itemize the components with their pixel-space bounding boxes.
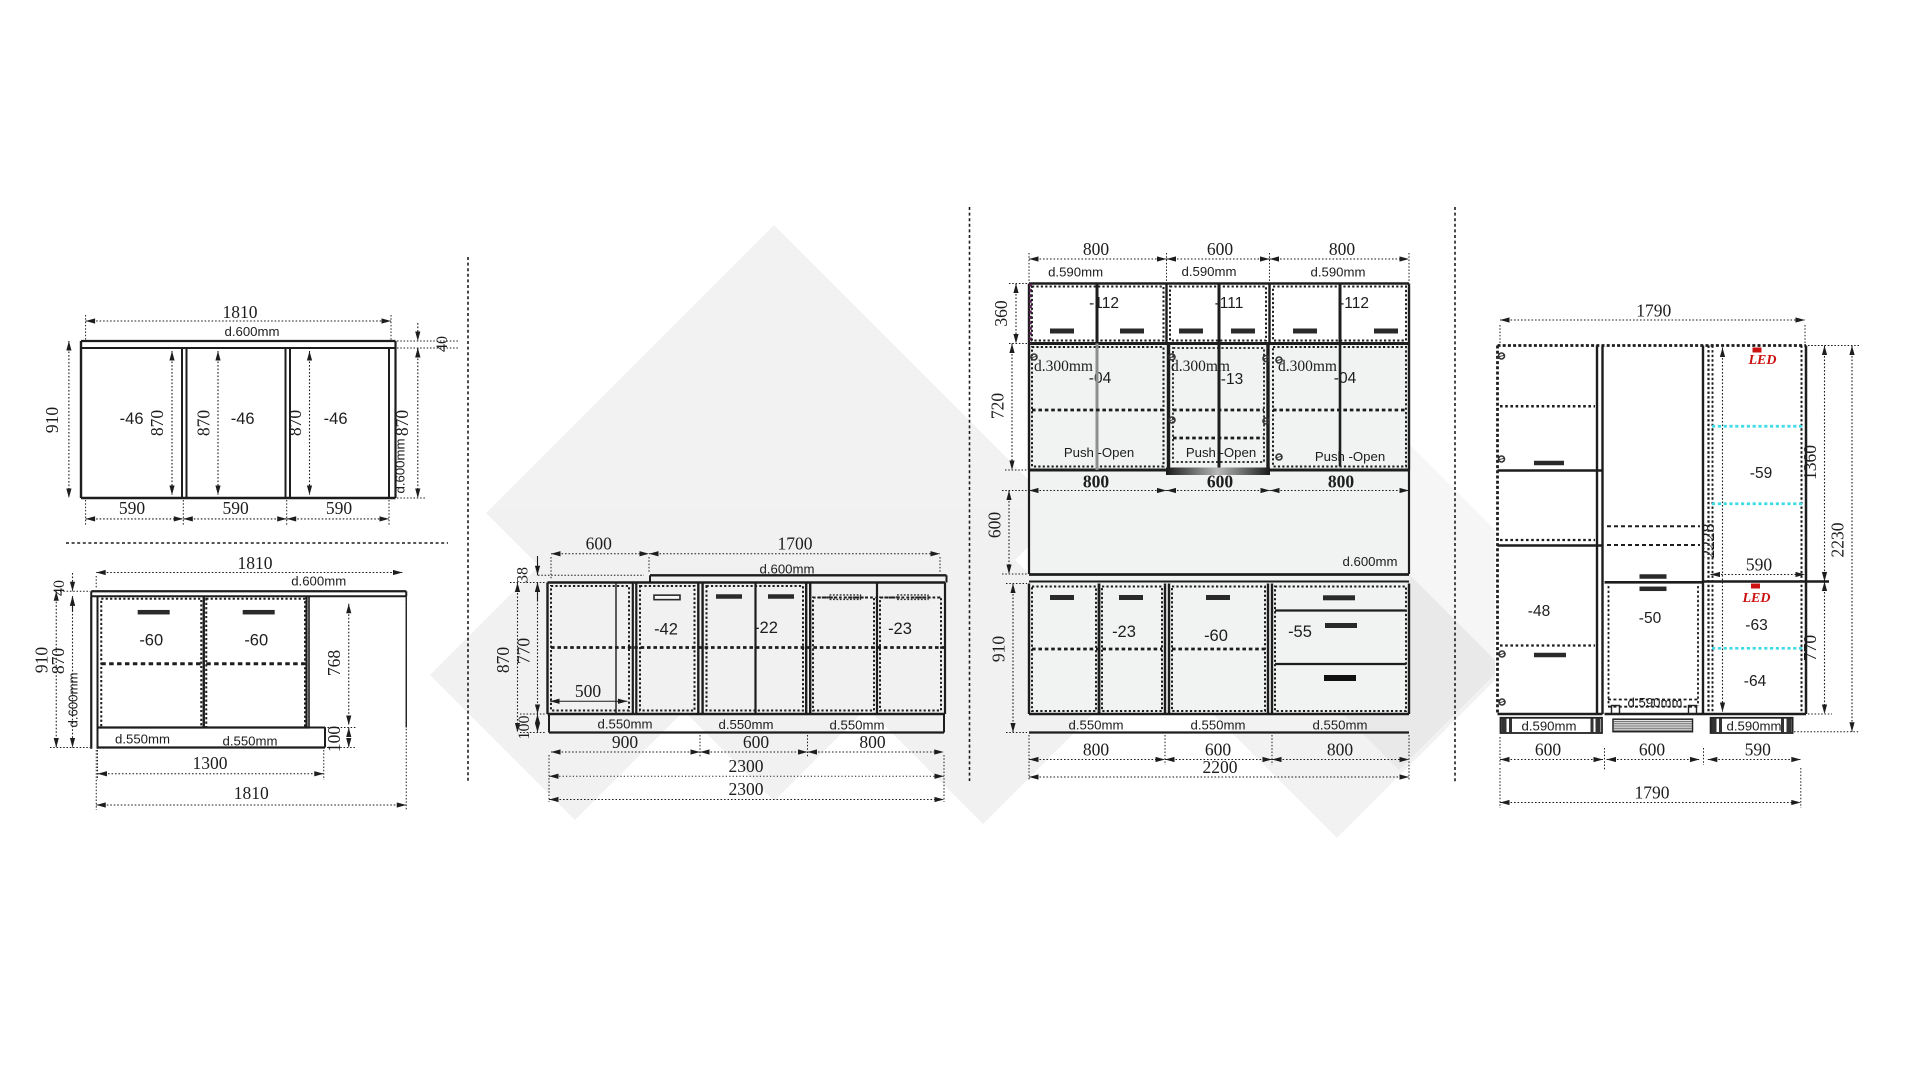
svg-text:d.590mm: d.590mm xyxy=(1182,264,1237,279)
svg-text:d.550mm: d.550mm xyxy=(1313,718,1368,733)
svg-text:d.550mm: d.550mm xyxy=(223,734,278,749)
svg-text:600: 600 xyxy=(1639,740,1666,760)
svg-text:-46: -46 xyxy=(324,410,348,428)
svg-text:Push -Open: Push -Open xyxy=(1315,449,1385,464)
svg-text:d.590mm: d.590mm xyxy=(1522,719,1577,734)
svg-text:-64: -64 xyxy=(1744,673,1767,690)
svg-text:2230: 2230 xyxy=(1828,522,1848,557)
svg-text:-111: -111 xyxy=(1215,295,1244,312)
svg-text:-112: -112 xyxy=(1339,295,1369,312)
svg-text:40: 40 xyxy=(434,336,451,352)
svg-text:2200: 2200 xyxy=(1203,757,1238,777)
svg-text:1810: 1810 xyxy=(223,302,258,322)
svg-text:600: 600 xyxy=(1207,472,1234,492)
svg-text:d.550mm: d.550mm xyxy=(1069,718,1124,733)
svg-text:1360: 1360 xyxy=(1800,445,1820,480)
svg-text:500: 500 xyxy=(575,681,602,701)
svg-text:590: 590 xyxy=(1746,555,1773,575)
svg-text:590: 590 xyxy=(326,498,353,518)
svg-text:600: 600 xyxy=(743,732,770,752)
svg-text:-13: -13 xyxy=(1221,371,1243,388)
svg-text:600: 600 xyxy=(1535,740,1562,760)
svg-text:d.550mm: d.550mm xyxy=(830,718,885,733)
svg-text:-04: -04 xyxy=(1334,370,1357,387)
svg-text:590: 590 xyxy=(222,498,249,518)
svg-text:d.550mm: d.550mm xyxy=(719,717,774,732)
svg-text:LED: LED xyxy=(1742,591,1771,606)
svg-text:800: 800 xyxy=(1083,472,1110,492)
svg-text:d.600mm: d.600mm xyxy=(291,574,346,589)
svg-text:-22: -22 xyxy=(754,619,778,637)
svg-text:910: 910 xyxy=(989,636,1009,663)
svg-text:-46: -46 xyxy=(120,410,144,428)
svg-text:Push -Open: Push -Open xyxy=(1064,445,1134,460)
svg-text:-50: -50 xyxy=(1639,610,1662,627)
svg-text:770: 770 xyxy=(1800,635,1820,662)
svg-text:Push -Open: Push -Open xyxy=(1186,445,1256,460)
svg-text:1810: 1810 xyxy=(238,553,273,573)
svg-text:-55: -55 xyxy=(1288,623,1312,641)
svg-text:800: 800 xyxy=(1328,472,1355,492)
svg-text:720: 720 xyxy=(988,393,1008,420)
svg-text:-23: -23 xyxy=(888,620,912,638)
svg-text:600: 600 xyxy=(586,534,613,554)
svg-text:40: 40 xyxy=(51,580,68,596)
svg-text:38: 38 xyxy=(515,567,532,583)
svg-text:770: 770 xyxy=(514,638,534,665)
svg-text:1790: 1790 xyxy=(1635,783,1670,803)
svg-text:d.550mm: d.550mm xyxy=(115,732,170,747)
svg-text:1300: 1300 xyxy=(193,753,228,773)
svg-text:d.590mm: d.590mm xyxy=(1628,695,1683,710)
svg-text:600: 600 xyxy=(985,512,1005,539)
svg-text:d.600mm: d.600mm xyxy=(66,673,81,728)
svg-text:870: 870 xyxy=(147,410,167,437)
svg-text:800: 800 xyxy=(1329,239,1356,259)
svg-text:-42: -42 xyxy=(654,621,678,639)
svg-text:800: 800 xyxy=(1083,740,1110,760)
svg-text:2228: 2228 xyxy=(1698,523,1718,558)
svg-text:600: 600 xyxy=(1207,239,1234,259)
svg-text:2300: 2300 xyxy=(729,779,764,799)
svg-text:-112: -112 xyxy=(1089,295,1119,312)
svg-text:-60: -60 xyxy=(139,632,163,650)
svg-text:100: 100 xyxy=(324,726,344,753)
svg-text:d.590mm: d.590mm xyxy=(1311,265,1366,280)
svg-text:870: 870 xyxy=(194,410,214,437)
svg-text:d.300mm: d.300mm xyxy=(1278,358,1337,375)
svg-text:360: 360 xyxy=(991,300,1011,327)
svg-text:2300: 2300 xyxy=(729,756,764,776)
svg-text:870: 870 xyxy=(493,647,513,674)
svg-text:870: 870 xyxy=(392,410,412,437)
svg-text:-48: -48 xyxy=(1528,603,1550,620)
svg-text:-59: -59 xyxy=(1750,465,1772,482)
svg-text:590: 590 xyxy=(119,498,146,518)
svg-text:100: 100 xyxy=(516,716,533,740)
svg-text:900: 900 xyxy=(612,732,639,752)
svg-text:-63: -63 xyxy=(1745,617,1767,634)
svg-text:590: 590 xyxy=(1745,740,1772,760)
svg-text:-60: -60 xyxy=(244,632,268,650)
svg-text:768: 768 xyxy=(324,650,344,677)
svg-text:870: 870 xyxy=(48,648,68,675)
svg-text:LED: LED xyxy=(1748,353,1777,368)
svg-text:1810: 1810 xyxy=(234,783,269,803)
svg-text:1700: 1700 xyxy=(778,534,813,554)
svg-text:d.600mm: d.600mm xyxy=(225,324,280,339)
svg-text:d.550mm: d.550mm xyxy=(598,717,653,732)
svg-text:d.590mm: d.590mm xyxy=(1048,265,1103,280)
svg-text:d.590mm: d.590mm xyxy=(1727,719,1782,734)
svg-text:-04: -04 xyxy=(1089,370,1112,387)
svg-text:-60: -60 xyxy=(1204,627,1228,645)
svg-text:800: 800 xyxy=(1083,239,1110,259)
svg-text:800: 800 xyxy=(859,732,886,752)
svg-text:d.600mm: d.600mm xyxy=(393,439,408,494)
svg-text:-46: -46 xyxy=(231,410,255,428)
svg-text:800: 800 xyxy=(1327,740,1354,760)
svg-text:-23: -23 xyxy=(1112,623,1136,641)
svg-text:d.550mm: d.550mm xyxy=(1191,718,1246,733)
svg-text:1790: 1790 xyxy=(1636,301,1671,321)
svg-text:910: 910 xyxy=(42,407,62,434)
svg-text:d.300mm: d.300mm xyxy=(1034,358,1093,375)
svg-text:870: 870 xyxy=(285,410,305,437)
svg-text:d.600mm: d.600mm xyxy=(1343,554,1398,569)
